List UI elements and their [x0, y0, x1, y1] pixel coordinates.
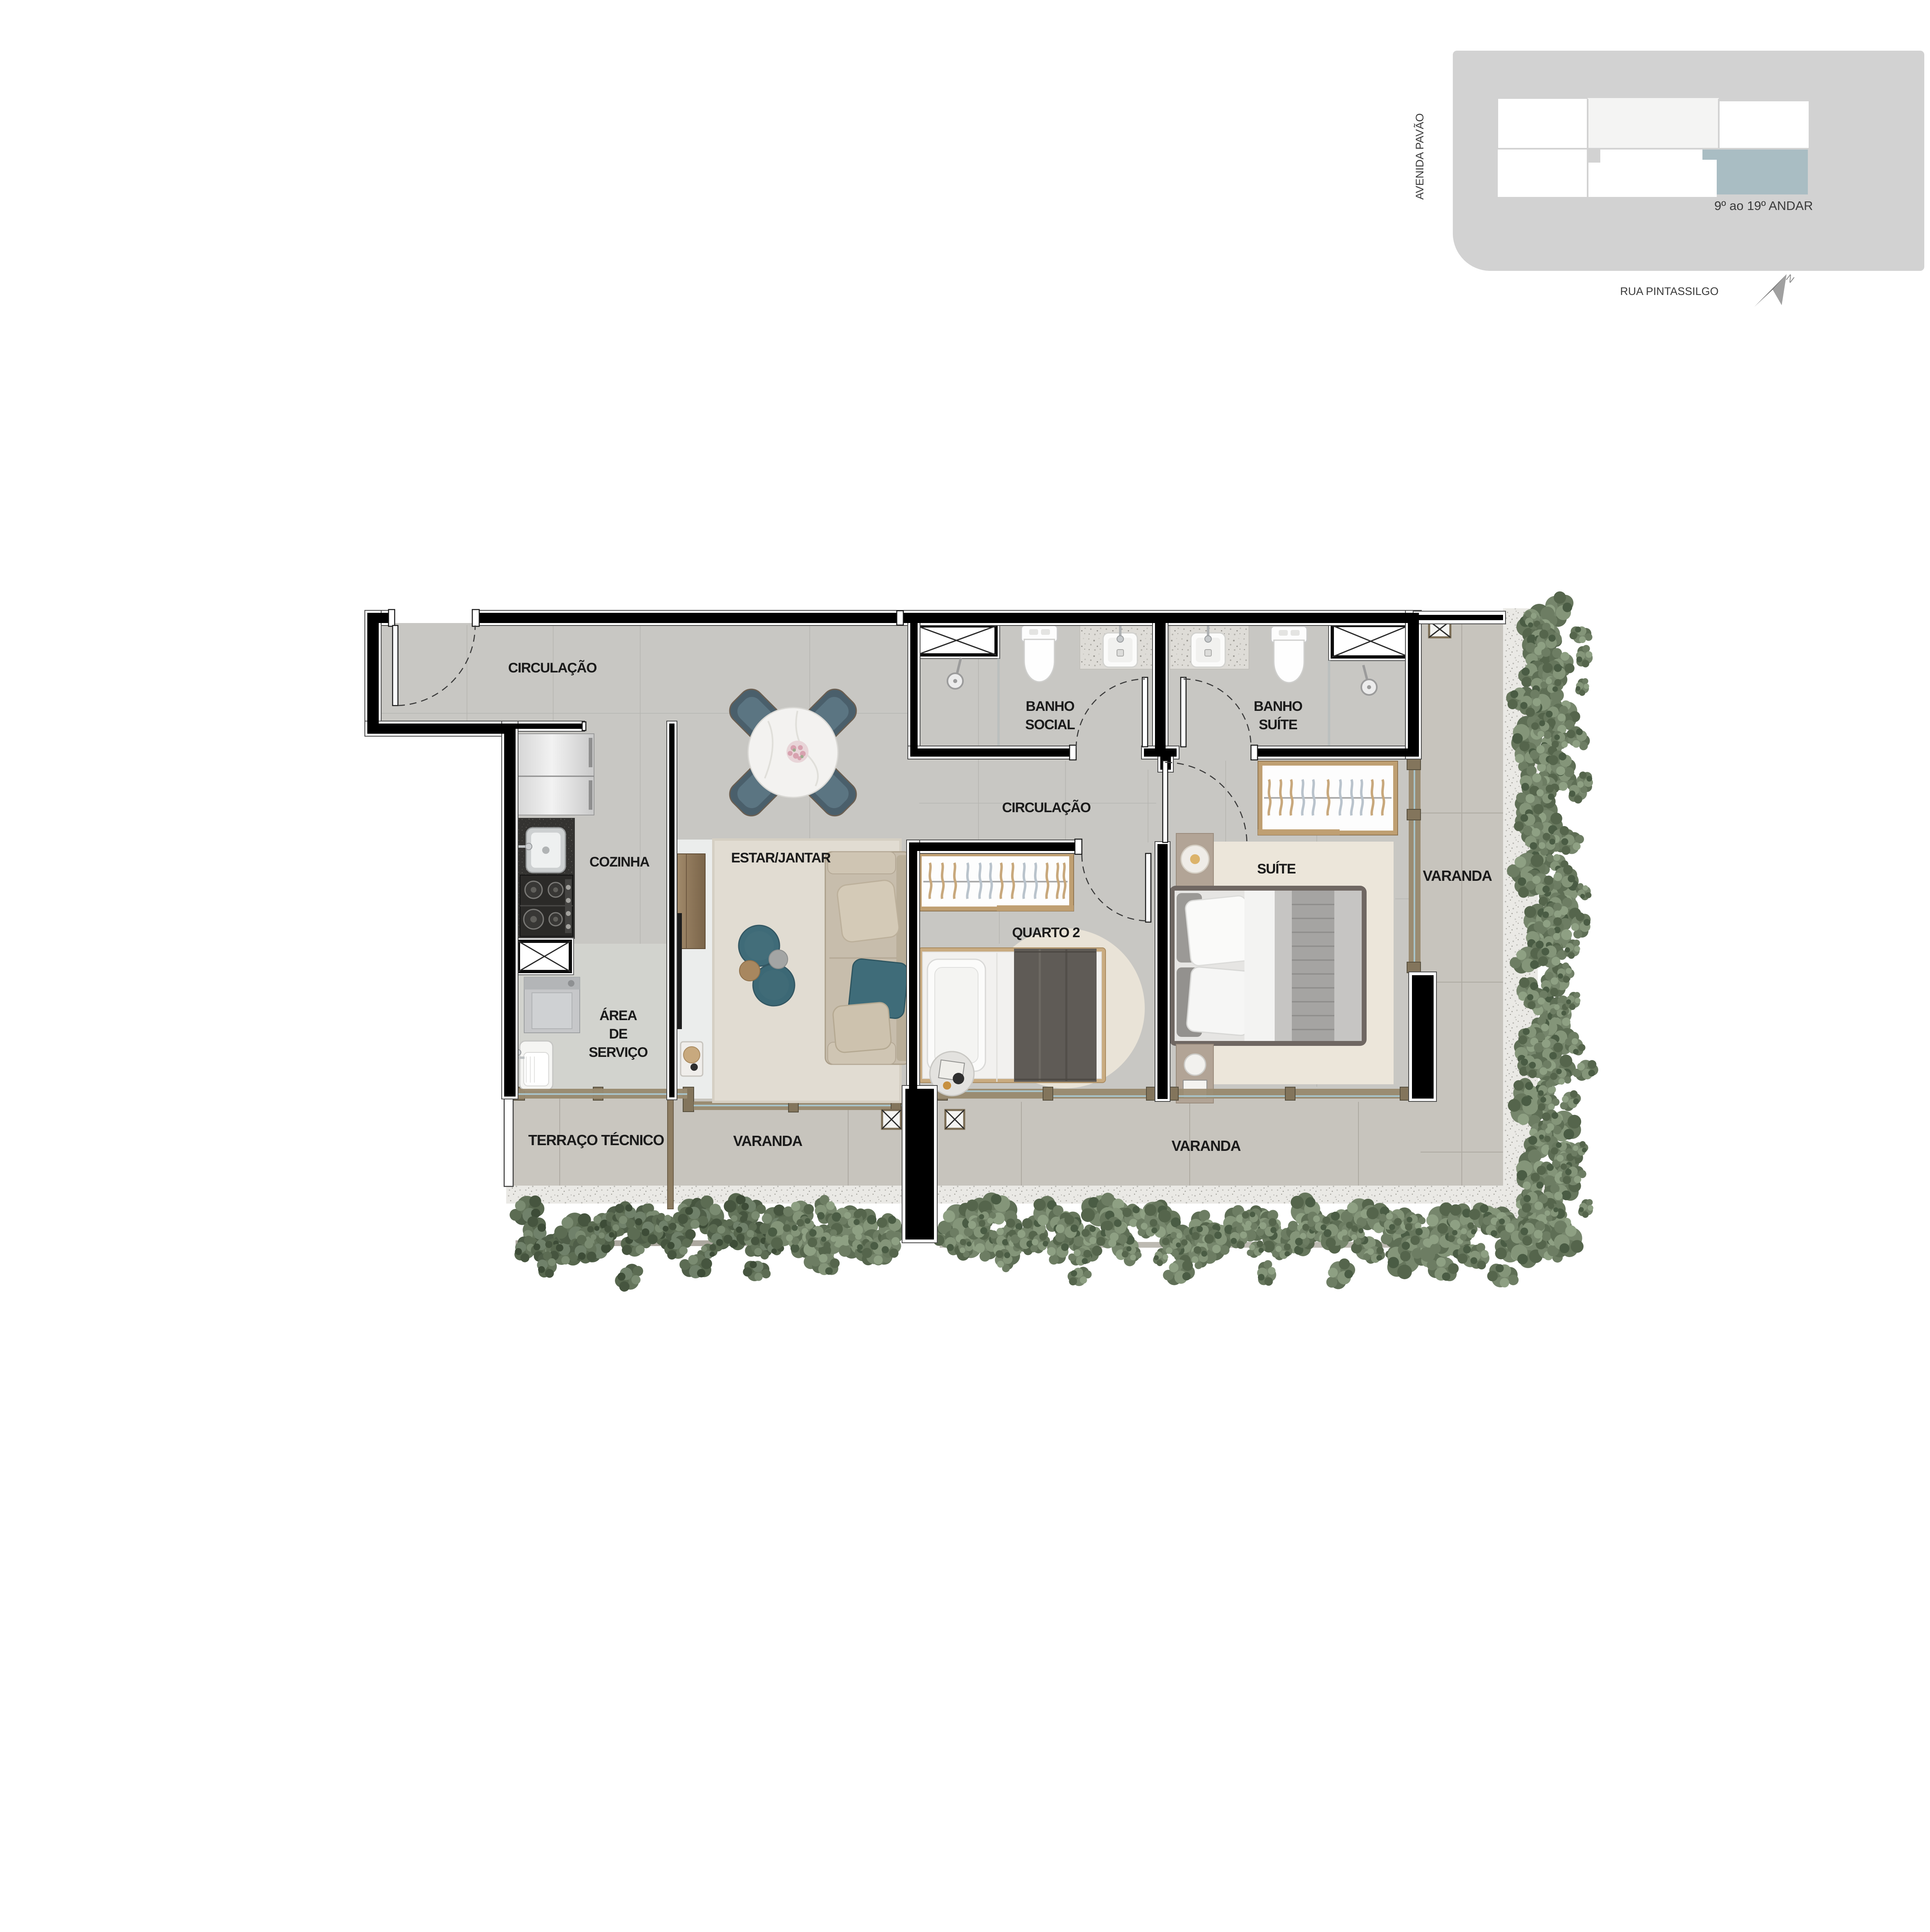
svg-text:BANHO: BANHO — [1026, 699, 1074, 714]
svg-text:AVENIDA PAVÃO: AVENIDA PAVÃO — [1413, 113, 1426, 200]
svg-text:SUÍTE: SUÍTE — [1259, 717, 1298, 733]
svg-text:COZINHA: COZINHA — [590, 854, 650, 870]
svg-text:DE: DE — [609, 1026, 628, 1042]
svg-text:BANHO: BANHO — [1254, 699, 1302, 714]
svg-text:RUA PINTASSILGO: RUA PINTASSILGO — [1620, 285, 1718, 297]
svg-text:QUARTO 2: QUARTO 2 — [1012, 925, 1080, 940]
svg-text:SOCIAL: SOCIAL — [1025, 717, 1075, 733]
svg-text:SERVIÇO: SERVIÇO — [589, 1045, 648, 1060]
svg-text:VARANDA: VARANDA — [733, 1132, 803, 1149]
svg-text:CIRCULAÇÃO: CIRCULAÇÃO — [1002, 800, 1091, 815]
svg-text:SUÍTE: SUÍTE — [1257, 861, 1296, 877]
svg-text:9º ao 19º ANDAR: 9º ao 19º ANDAR — [1714, 199, 1813, 213]
svg-text:VARANDA: VARANDA — [1172, 1137, 1241, 1154]
svg-text:CIRCULAÇÃO: CIRCULAÇÃO — [508, 660, 597, 676]
svg-text:ESTAR/JANTAR: ESTAR/JANTAR — [731, 850, 831, 866]
svg-text:ÁREA: ÁREA — [599, 1008, 637, 1023]
svg-text:VARANDA: VARANDA — [1423, 867, 1492, 884]
svg-text:TERRAÇO TÉCNICO: TERRAÇO TÉCNICO — [528, 1132, 664, 1148]
